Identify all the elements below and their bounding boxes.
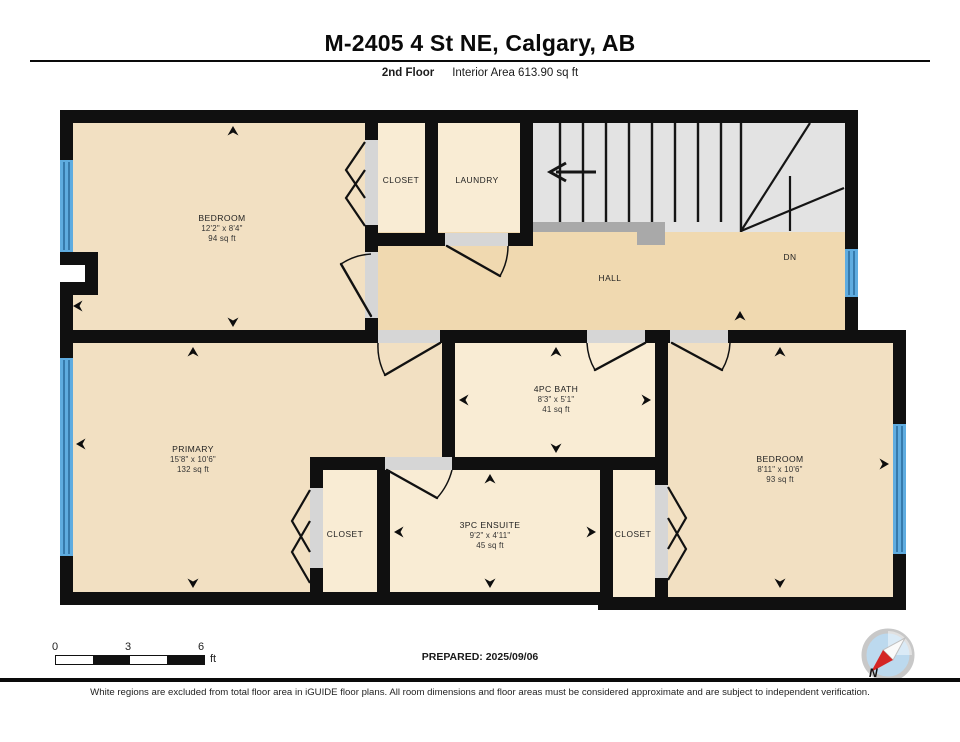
svg-text:BEDROOM: BEDROOM xyxy=(756,454,803,464)
svg-text:12'2" x 8'4": 12'2" x 8'4" xyxy=(201,224,242,233)
svg-text:PRIMARY: PRIMARY xyxy=(172,444,214,454)
floorplan-drawing: BEDROOM 12'2" x 8'4" 94 sq ft CLOSET LAU… xyxy=(0,0,960,742)
svg-text:3PC ENSUITE: 3PC ENSUITE xyxy=(460,520,521,530)
svg-text:45 sq ft: 45 sq ft xyxy=(476,541,504,550)
prepared-date: PREPARED: 2025/09/06 xyxy=(0,651,960,663)
window xyxy=(60,160,73,252)
svg-text:8'11" x 10'6": 8'11" x 10'6" xyxy=(757,465,802,474)
svg-text:93 sq ft: 93 sq ft xyxy=(766,475,794,484)
svg-text:94 sq ft: 94 sq ft xyxy=(208,234,236,243)
svg-text:132 sq ft: 132 sq ft xyxy=(177,465,210,474)
footer-divider xyxy=(0,678,960,682)
stair-landing-step xyxy=(637,222,665,245)
svg-text:41 sq ft: 41 sq ft xyxy=(542,405,570,414)
compass-icon xyxy=(859,626,917,684)
window xyxy=(60,358,73,556)
window xyxy=(845,249,858,297)
hall-floor xyxy=(365,232,845,343)
svg-text:8'3" x 5'1": 8'3" x 5'1" xyxy=(538,395,575,404)
svg-text:15'8" x 10'6": 15'8" x 10'6" xyxy=(170,455,216,464)
svg-text:BEDROOM: BEDROOM xyxy=(198,213,245,223)
closet-left-label: CLOSET xyxy=(327,529,364,539)
window xyxy=(893,424,906,554)
stairs-down-label: DN xyxy=(783,252,796,262)
svg-text:4PC BATH: 4PC BATH xyxy=(534,384,579,394)
hall-label: HALL xyxy=(599,273,622,283)
closet-top-label: CLOSET xyxy=(383,175,420,185)
floorplan-page: M-2405 4 St NE, Calgary, AB 2nd Floor In… xyxy=(0,0,960,742)
svg-text:9'2" x 4'11": 9'2" x 4'11" xyxy=(470,531,511,540)
closet-right-label: CLOSET xyxy=(615,529,652,539)
disclaimer-text: White regions are excluded from total fl… xyxy=(0,687,960,698)
exterior-notch xyxy=(57,265,85,282)
laundry-label: LAUNDRY xyxy=(455,175,498,185)
stair-landing-strip xyxy=(533,222,645,232)
